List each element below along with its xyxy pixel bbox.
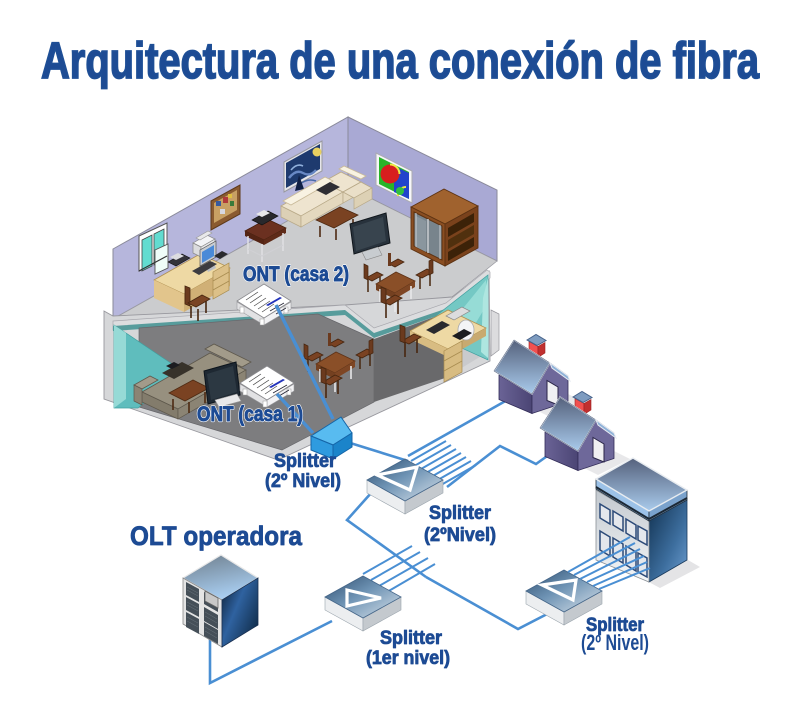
svg-text:Splitter: Splitter [274,451,337,472]
svg-text:Splitter: Splitter [380,628,443,649]
svg-text:OLT operadora: OLT operadora [130,521,303,551]
svg-text:(2º Nivel): (2º Nivel) [265,471,341,492]
svg-text:(1er nivel): (1er nivel) [366,648,450,669]
svg-text:ONT (casa 2): ONT (casa 2) [243,263,349,286]
svg-text:Arquitectura de una conexión d: Arquitectura de una conexión de fibra [41,32,759,89]
svg-text:ONT (casa 1): ONT (casa 1) [197,403,303,426]
svg-text:(2º Nivel): (2º Nivel) [581,630,649,655]
svg-text:Splitter: Splitter [429,503,492,524]
svg-text:(2ºNivel): (2ºNivel) [424,525,496,546]
